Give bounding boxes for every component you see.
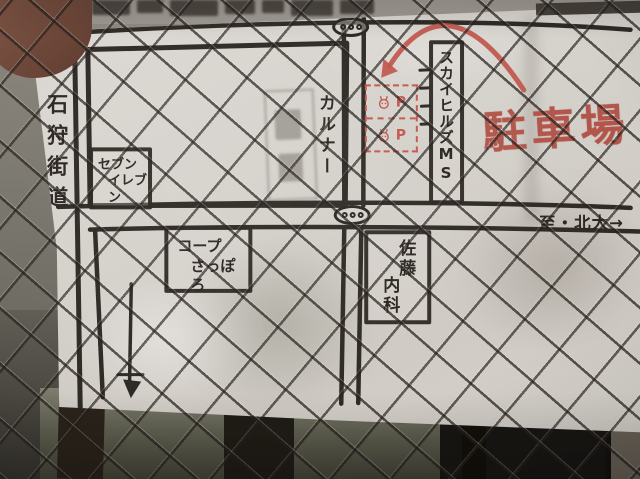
building-seven-eleven: セブン イレブン: [89, 147, 152, 209]
down-arrow-cross-tick: [118, 374, 143, 376]
hand-drawn-map-paper: 石狩街道 セブン イレブン カルナー スカイヒルズMS P: [26, 4, 640, 465]
building-sato-clinic: 佐藤 内科: [364, 230, 431, 324]
photo-of-hand-drawn-map-behind-fence: 石狩街道 セブン イレブン カルナー スカイヒルズMS P: [0, 0, 640, 479]
building-coop-sapporo: コープ さっぽろ: [164, 226, 252, 293]
bunny-icon: [377, 128, 391, 142]
parking-p-mark: P: [396, 94, 406, 110]
traffic-signal-icon: [332, 17, 369, 37]
parking-spot-cell: P: [367, 86, 416, 119]
seven-eleven-label-line1: セブン: [98, 157, 148, 173]
route-label-to-hokudai: 至・北大→: [539, 209, 639, 234]
dark-post-left: [57, 397, 105, 479]
parking-spot-cell: P: [367, 119, 416, 150]
parking-p-mark: P: [396, 127, 406, 143]
coop-label-line1: コープ: [177, 237, 248, 257]
blurred-text-behind-glass: [92, 0, 374, 20]
bunny-icon: [377, 95, 391, 109]
map-roads-drawing: [26, 4, 640, 465]
building-sky-hills-ms: スカイヒルズMS: [429, 40, 464, 204]
seven-eleven-label-line2: イレブン: [108, 174, 148, 207]
sato-clinic-label-line1: 佐藤: [393, 239, 418, 279]
parking-spots-dashed-box: P P: [365, 84, 418, 152]
sky-hills-ms-label: スカイヒルズMS: [436, 49, 457, 200]
down-arrow-head: [123, 379, 142, 399]
lower-left-block-edge: [95, 230, 103, 397]
sato-clinic-label-line2: 内科: [377, 276, 402, 316]
building-label-karuna: カルナー: [310, 94, 338, 194]
center-road-lower-left-line: [334, 229, 351, 403]
coop-label-line2: さっぽろ: [190, 256, 248, 295]
parking-lot-label: 駐車場: [480, 88, 640, 170]
down-arrow-shaft: [125, 284, 135, 388]
traffic-signal-icon: [334, 205, 371, 225]
